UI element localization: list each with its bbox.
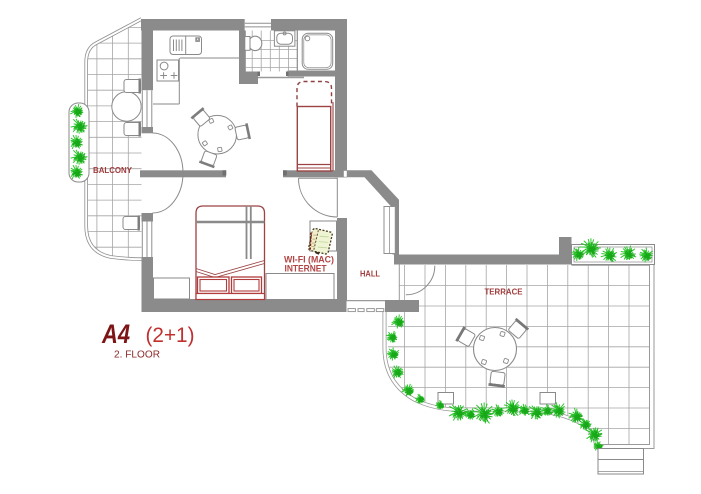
svg-text:2. FLOOR: 2. FLOOR — [114, 350, 160, 361]
svg-text:BALCONY: BALCONY — [93, 165, 132, 175]
svg-text:TERRACE: TERRACE — [485, 287, 523, 297]
svg-text:HALL: HALL — [360, 269, 380, 279]
svg-text:A4: A4 — [101, 319, 130, 349]
svg-text:(2+1): (2+1) — [146, 323, 195, 347]
svg-text:INTERNET: INTERNET — [285, 264, 327, 274]
